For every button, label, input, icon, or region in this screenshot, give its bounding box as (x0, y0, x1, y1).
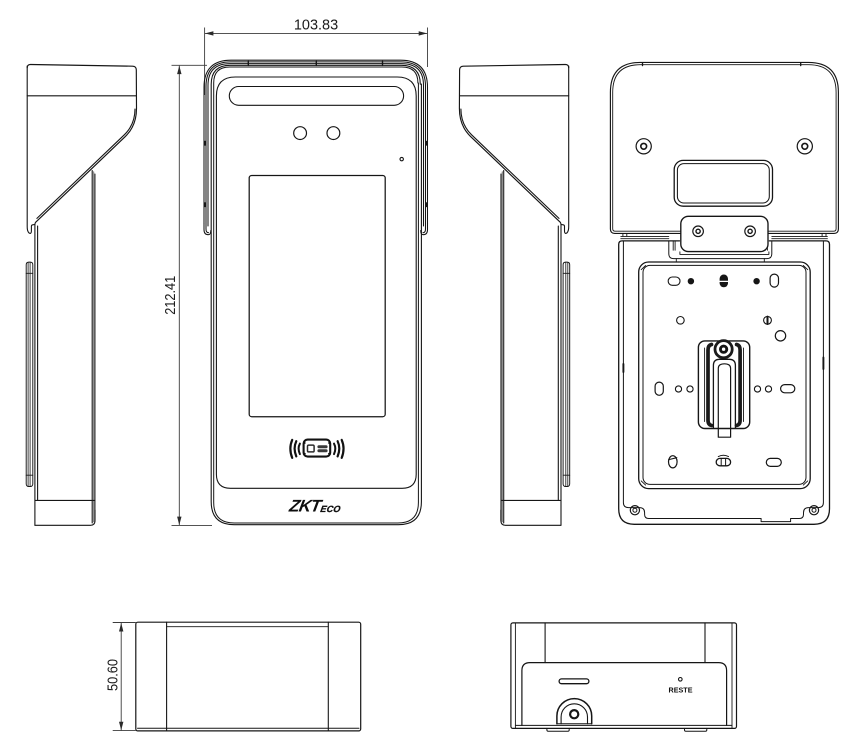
svg-text:212.41: 212.41 (162, 276, 179, 315)
svg-text:50.60: 50.60 (105, 659, 122, 691)
svg-text:ECO: ECO (320, 504, 342, 514)
svg-text:103.83: 103.83 (294, 18, 338, 34)
svg-text:ZKT: ZKT (287, 496, 324, 516)
svg-text:RESTE: RESTE (669, 686, 693, 695)
